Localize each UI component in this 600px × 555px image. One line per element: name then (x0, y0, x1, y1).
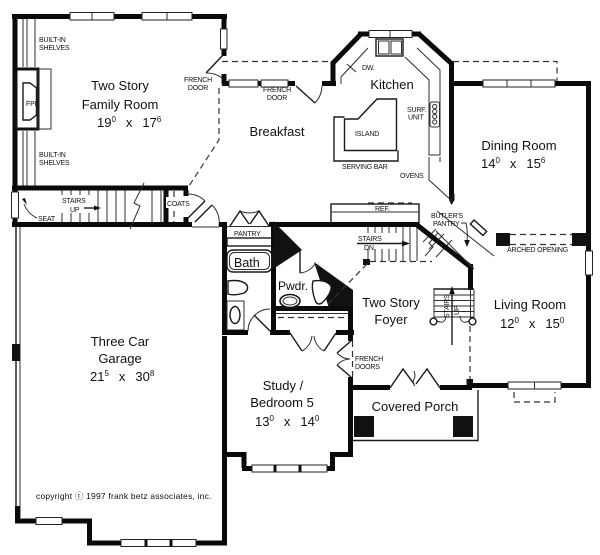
svg-text:BUILT-IN: BUILT-IN (39, 37, 66, 44)
svg-text:STAIRS: STAIRS (358, 236, 382, 243)
svg-text:FPL.: FPL. (26, 101, 40, 108)
svg-text:SHELVES: SHELVES (39, 45, 70, 52)
svg-text:Covered Porch: Covered Porch (372, 399, 459, 414)
svg-text:Study /: Study / (263, 378, 304, 393)
svg-text:UNIT: UNIT (408, 115, 424, 122)
svg-text:UP: UP (454, 305, 461, 315)
svg-text:PANTRY: PANTRY (433, 221, 460, 228)
svg-text:copyright ⓒ 1997 frank betz: copyright ⓒ 1997 frank betz associates, … (36, 491, 212, 501)
svg-text:Dining Room: Dining Room (481, 138, 556, 153)
svg-text:SEAT: SEAT (38, 216, 56, 223)
svg-text:SURF.: SURF. (407, 107, 426, 114)
svg-text:PANTRY: PANTRY (234, 231, 261, 238)
svg-text:Living Room: Living Room (494, 297, 566, 312)
svg-text:FRENCH: FRENCH (355, 356, 383, 363)
svg-text:DW.: DW. (362, 65, 375, 72)
svg-text:REF.: REF. (375, 206, 390, 213)
svg-text:DOORS: DOORS (355, 364, 380, 371)
svg-text:Foyer: Foyer (374, 312, 408, 327)
svg-text:215x308: 215x308 (90, 369, 155, 384)
svg-text:UP: UP (70, 207, 80, 214)
svg-text:SHELVES: SHELVES (39, 160, 70, 167)
svg-text:ISLAND: ISLAND (355, 131, 379, 138)
svg-text:Family Room: Family Room (82, 97, 159, 112)
svg-text:Bath: Bath (234, 256, 260, 270)
svg-text:BUILT-IN: BUILT-IN (39, 152, 66, 159)
svg-text:FRENCH: FRENCH (263, 87, 291, 94)
svg-text:Two Story: Two Story (362, 295, 420, 310)
svg-text:140x156: 140x156 (481, 156, 546, 171)
svg-text:Kitchen: Kitchen (370, 77, 413, 92)
svg-text:120x150: 120x150 (500, 316, 565, 331)
svg-text:FRENCH: FRENCH (184, 77, 212, 84)
svg-text:STAIRS: STAIRS (62, 198, 86, 205)
svg-text:ARCHED OPENING: ARCHED OPENING (507, 247, 568, 254)
svg-text:SERVING BAR: SERVING BAR (342, 164, 388, 171)
svg-text:Garage: Garage (98, 351, 141, 366)
svg-text:Pwdr.: Pwdr. (278, 279, 308, 293)
svg-text:Breakfast: Breakfast (250, 124, 305, 139)
svg-text:STAIRS: STAIRS (444, 294, 451, 318)
svg-text:Bedroom 5: Bedroom 5 (250, 395, 314, 410)
svg-text:Three Car: Three Car (91, 334, 150, 349)
svg-text:Two Story: Two Story (91, 78, 149, 93)
svg-text:COATS: COATS (167, 201, 190, 208)
svg-text:130x140: 130x140 (255, 414, 320, 429)
svg-text:190x176: 190x176 (97, 115, 162, 130)
svg-text:OVENS: OVENS (400, 173, 424, 180)
svg-text:BUTLER'S: BUTLER'S (431, 213, 464, 220)
svg-text:DOOR: DOOR (188, 85, 208, 92)
svg-text:DOOR: DOOR (267, 95, 287, 102)
svg-text:DN.: DN. (364, 245, 376, 252)
